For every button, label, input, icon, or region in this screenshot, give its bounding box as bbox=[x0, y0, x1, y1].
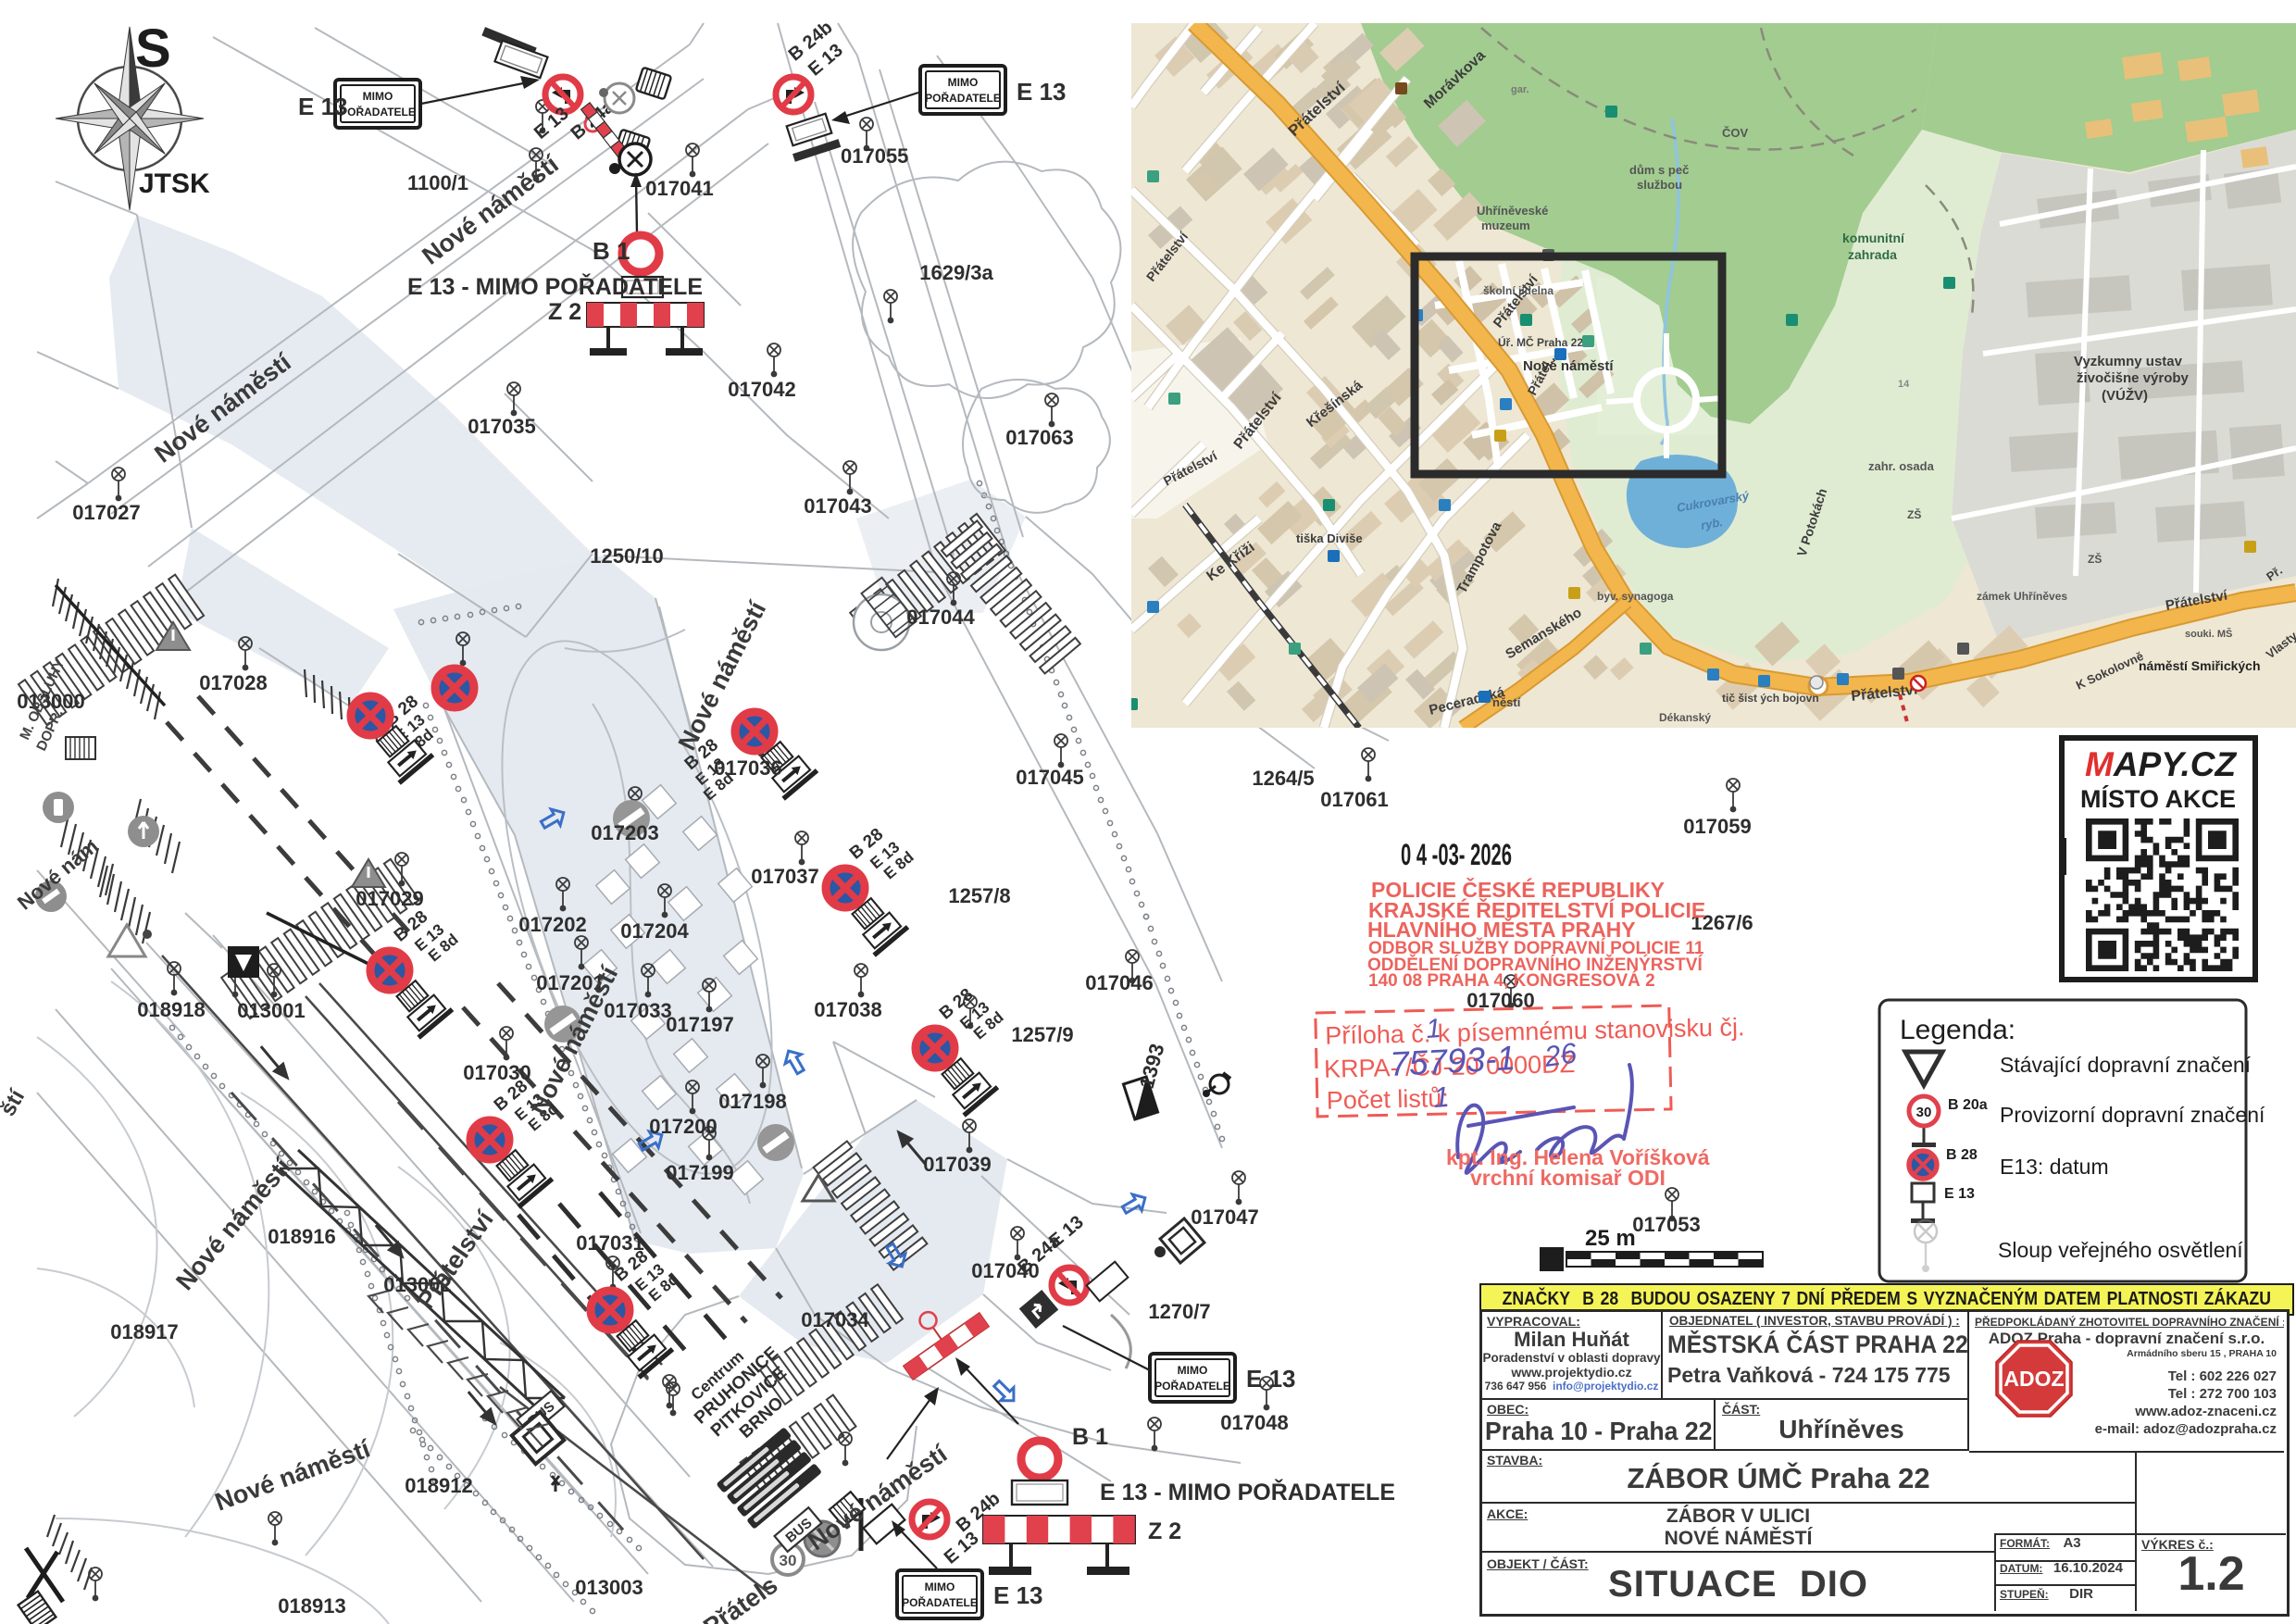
svg-text:017030: 017030 bbox=[463, 1061, 530, 1084]
svg-text:017033: 017033 bbox=[604, 999, 671, 1022]
svg-text:JTSK: JTSK bbox=[139, 169, 210, 199]
svg-text:017047: 017047 bbox=[1191, 1206, 1258, 1229]
svg-text:018918: 018918 bbox=[137, 998, 205, 1021]
svg-text:školní jídelna: školní jídelna bbox=[1483, 284, 1554, 297]
svg-text:017043: 017043 bbox=[804, 494, 871, 518]
svg-text:1: 1 bbox=[1432, 1081, 1451, 1114]
svg-text:017028: 017028 bbox=[199, 671, 267, 694]
svg-text:E 13: E 13 bbox=[298, 93, 348, 120]
svg-text:140 08 PRAHA 4, KONGRESOVÁ 2: 140 08 PRAHA 4, KONGRESOVÁ 2 bbox=[1368, 970, 1655, 991]
svg-text:Dékanský: Dékanský bbox=[1659, 711, 1711, 724]
svg-text:017053: 017053 bbox=[1632, 1213, 1700, 1236]
svg-text:tič šist ých bojovn: tič šist ých bojovn bbox=[1722, 692, 1819, 705]
svg-text:zahrada: zahrada bbox=[1848, 247, 1897, 262]
svg-text:E13: datum: E13: datum bbox=[2000, 1155, 2109, 1179]
svg-text:018916: 018916 bbox=[268, 1225, 335, 1248]
svg-text:MAPY.CZ: MAPY.CZ bbox=[2085, 745, 2238, 783]
svg-text:017063: 017063 bbox=[1005, 426, 1073, 449]
svg-text:ČOV: ČOV bbox=[1722, 126, 1749, 140]
svg-text:017046: 017046 bbox=[1085, 971, 1153, 994]
svg-text:vrchní komisař ODI: vrchní komisař ODI bbox=[1470, 1166, 1666, 1190]
svg-text:Stávající dopravní značení: Stávající dopravní značení bbox=[2000, 1053, 2252, 1077]
svg-text:HLAVNÍHO MĚSTA PRAHY: HLAVNÍHO MĚSTA PRAHY bbox=[1367, 917, 1636, 942]
svg-text:017059: 017059 bbox=[1683, 815, 1751, 838]
svg-text:018913: 018913 bbox=[278, 1594, 345, 1618]
svg-text:30: 30 bbox=[1916, 1105, 1932, 1120]
svg-text:náměstí Smiřických: náměstí Smiřických bbox=[2139, 658, 2261, 673]
svg-text:017204: 017204 bbox=[620, 919, 689, 943]
svg-text:013003: 013003 bbox=[575, 1576, 643, 1599]
svg-text:B 1: B 1 bbox=[1072, 1424, 1108, 1450]
svg-text:1257/9: 1257/9 bbox=[1011, 1023, 1073, 1046]
svg-text:017055: 017055 bbox=[841, 144, 908, 168]
svg-text:muzeum: muzeum bbox=[1481, 219, 1530, 232]
svg-text:S: S bbox=[135, 19, 171, 79]
svg-text:ZŠ: ZŠ bbox=[2088, 552, 2102, 566]
svg-text:ADOZ: ADOZ bbox=[2003, 1367, 2064, 1391]
svg-text:zahr. osada: zahr. osada bbox=[1868, 459, 1935, 473]
svg-text:1264/5: 1264/5 bbox=[1252, 767, 1314, 790]
svg-text:E 13: E 13 bbox=[993, 1581, 1043, 1609]
svg-text:75793-1: 75793-1 bbox=[1389, 1039, 1516, 1083]
svg-text:017197: 017197 bbox=[666, 1013, 733, 1036]
svg-text:017199: 017199 bbox=[666, 1161, 733, 1184]
svg-text:1629/3a: 1629/3a bbox=[919, 261, 993, 284]
svg-text:byv. synagoga: byv. synagoga bbox=[1597, 590, 1674, 603]
svg-text:Z 2: Z 2 bbox=[1148, 1518, 1181, 1544]
svg-text:017045: 017045 bbox=[1016, 766, 1083, 789]
svg-text:017042: 017042 bbox=[728, 378, 795, 401]
svg-text:ZŠ: ZŠ bbox=[1907, 507, 1921, 521]
svg-text:017041: 017041 bbox=[645, 177, 713, 200]
svg-text:017198: 017198 bbox=[718, 1090, 786, 1113]
svg-text:Nové náměstí: Nové náměstí bbox=[1523, 358, 1614, 374]
svg-text:017029: 017029 bbox=[356, 887, 423, 910]
svg-text:MÍSTO AKCE: MÍSTO AKCE bbox=[2080, 784, 2236, 813]
svg-text:013001: 013001 bbox=[237, 999, 305, 1022]
svg-text:komunitní: komunitní bbox=[1842, 231, 1905, 245]
svg-text:B 1: B 1 bbox=[593, 237, 630, 265]
svg-text:zámek Uhříněves: zámek Uhříněves bbox=[1977, 590, 2067, 603]
svg-text:Z 2: Z 2 bbox=[548, 299, 581, 325]
svg-text:017037: 017037 bbox=[751, 865, 818, 888]
svg-text:Počet listů:: Počet listů: bbox=[1326, 1084, 1449, 1115]
svg-text:Provizorní dopravní značení: Provizorní dopravní značení bbox=[2000, 1103, 2265, 1127]
svg-text:E 13 - MIMO POŘADATELE: E 13 - MIMO POŘADATELE bbox=[1100, 1478, 1395, 1505]
svg-text:B 28: B 28 bbox=[1946, 1147, 1978, 1163]
svg-text:30: 30 bbox=[780, 1552, 797, 1569]
svg-text:něstí: něstí bbox=[1492, 695, 1521, 709]
svg-text:018917: 018917 bbox=[110, 1320, 178, 1343]
svg-text:živočišne výroby: živočišne výroby bbox=[2077, 370, 2190, 386]
svg-text:službou: službou bbox=[1637, 178, 1682, 192]
svg-text:Vyzkumny ustav: Vyzkumny ustav bbox=[2074, 354, 2183, 369]
svg-text:E 13 - MIMO POŘADATELE: E 13 - MIMO POŘADATELE bbox=[407, 272, 703, 300]
svg-text:017203: 017203 bbox=[591, 821, 658, 844]
svg-text:26: 26 bbox=[1541, 1036, 1579, 1073]
svg-text:E 13: E 13 bbox=[1017, 78, 1067, 106]
svg-text:E 13: E 13 bbox=[1246, 1365, 1296, 1393]
svg-text:017044: 017044 bbox=[906, 606, 975, 629]
svg-text:017039: 017039 bbox=[923, 1153, 991, 1176]
svg-text:(VÚŽV): (VÚŽV) bbox=[2102, 387, 2148, 404]
svg-text:1: 1 bbox=[1425, 1014, 1441, 1044]
svg-text:017202: 017202 bbox=[518, 913, 586, 936]
svg-text:017034: 017034 bbox=[801, 1308, 869, 1331]
svg-text:dům s peč: dům s peč bbox=[1629, 163, 1689, 177]
svg-text:gar.: gar. bbox=[1511, 84, 1529, 95]
svg-text:1257/8: 1257/8 bbox=[948, 884, 1010, 907]
svg-text:25 m: 25 m bbox=[1585, 1226, 1636, 1251]
svg-text:1270/7: 1270/7 bbox=[1148, 1300, 1210, 1323]
svg-text:017040: 017040 bbox=[971, 1259, 1039, 1282]
svg-text:1100/1: 1100/1 bbox=[407, 171, 468, 194]
svg-text:14: 14 bbox=[1898, 379, 1910, 390]
svg-text:souki. MŠ: souki. MŠ bbox=[2185, 628, 2232, 640]
svg-text:017035: 017035 bbox=[468, 415, 535, 438]
svg-text:1250/10: 1250/10 bbox=[590, 544, 664, 568]
svg-text:017200: 017200 bbox=[649, 1115, 717, 1138]
svg-text:Uhříněveské: Uhříněveské bbox=[1477, 204, 1548, 218]
svg-text:0 4 -03- 2026: 0 4 -03- 2026 bbox=[1401, 838, 1512, 871]
svg-text:018912: 018912 bbox=[405, 1474, 472, 1497]
svg-text:017031: 017031 bbox=[576, 1231, 643, 1255]
svg-text:E 13: E 13 bbox=[1944, 1186, 1975, 1202]
svg-text:B 20a: B 20a bbox=[1948, 1097, 1988, 1113]
svg-text:Úř. MČ Praha 22: Úř. MČ Praha 22 bbox=[1498, 335, 1583, 349]
svg-text:Sloup veřejného osvětlení: Sloup veřejného osvětlení bbox=[1998, 1238, 2243, 1262]
svg-text:Legenda:: Legenda: bbox=[1900, 1015, 2015, 1045]
svg-text:017027: 017027 bbox=[72, 501, 140, 524]
svg-text:tiška Diviše: tiška Diviše bbox=[1296, 531, 1363, 545]
svg-text:017048: 017048 bbox=[1220, 1411, 1288, 1434]
svg-text:017038: 017038 bbox=[814, 998, 881, 1021]
svg-text:017036: 017036 bbox=[714, 756, 781, 780]
svg-text:017061: 017061 bbox=[1320, 788, 1388, 811]
